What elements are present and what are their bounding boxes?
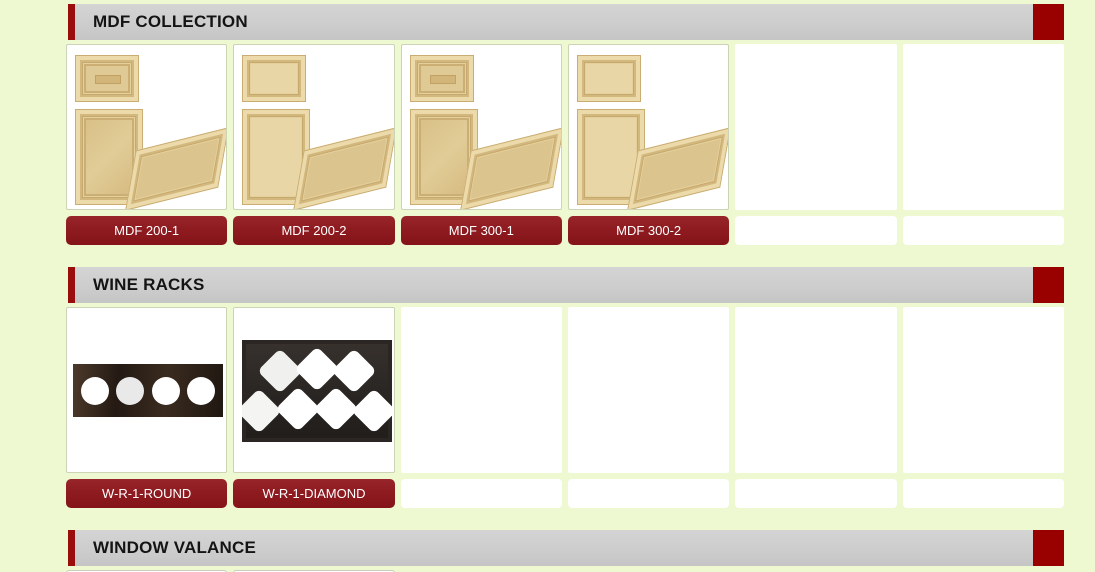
product-cell	[401, 307, 562, 508]
product-cell	[903, 307, 1064, 508]
product-cell: MDF 300-2	[568, 44, 729, 245]
wine-rack-diamond-image	[242, 340, 392, 442]
product-label-button[interactable]: MDF 200-1	[66, 216, 227, 245]
product-cell	[735, 44, 896, 245]
section-title: WINDOW VALANCE	[93, 538, 256, 558]
mdf-door-set-image	[569, 45, 728, 209]
header-accent-bar	[68, 4, 75, 40]
section-header-bar: WINDOW VALANCE	[68, 530, 1064, 566]
product-cell: MDF 300-1	[401, 44, 562, 245]
header-endcap-square	[1033, 267, 1064, 303]
drawer-front-image	[242, 55, 306, 102]
wine-rack-round-image	[73, 364, 223, 417]
mdf-door-set-image	[402, 45, 561, 209]
header-endcap-square	[1033, 4, 1064, 40]
product-label-button[interactable]: MDF 200-2	[233, 216, 394, 245]
empty-label-slot	[401, 479, 562, 508]
catalog-section: WINE RACKSW-R-1-ROUNDW-R-1-DIAMOND	[66, 267, 1064, 508]
diamond-hole	[276, 386, 321, 431]
section-title: WINE RACKS	[93, 275, 205, 295]
product-label-button[interactable]: MDF 300-1	[401, 216, 562, 245]
round-hole	[187, 377, 215, 405]
catalog-page: { "colors": { "background": "#eef8d1", "…	[0, 0, 1095, 572]
product-image-box[interactable]	[401, 44, 562, 210]
header-background: WINE RACKS	[75, 267, 1033, 303]
round-hole	[116, 377, 144, 405]
product-cell: MDF 200-1	[66, 44, 227, 245]
mdf-door-set-image	[67, 45, 226, 209]
product-grid: W-R-1-ROUNDW-R-1-DIAMOND	[66, 307, 1064, 508]
diamond-hole	[332, 348, 377, 393]
header-background: WINDOW VALANCE	[75, 530, 1033, 566]
product-image-box[interactable]	[66, 307, 227, 473]
empty-label-slot	[903, 216, 1064, 245]
product-cell	[903, 44, 1064, 245]
drawer-front-image	[410, 55, 474, 102]
section-title: MDF COLLECTION	[93, 12, 248, 32]
empty-product-slot	[401, 307, 562, 473]
product-cell	[568, 307, 729, 508]
product-image-box[interactable]	[66, 44, 227, 210]
empty-product-slot	[568, 307, 729, 473]
product-cell: MDF 200-2	[233, 44, 394, 245]
diamond-hole	[242, 388, 282, 433]
empty-product-slot	[735, 44, 896, 210]
round-hole	[81, 377, 109, 405]
catalog-section: MDF COLLECTIONMDF 200-1MDF 200-2MDF 300-…	[66, 4, 1064, 245]
empty-label-slot	[735, 216, 896, 245]
empty-product-slot	[903, 307, 1064, 473]
empty-label-slot	[735, 479, 896, 508]
empty-product-slot	[903, 44, 1064, 210]
product-cell: W-R-1-ROUND	[66, 307, 227, 508]
product-image-box[interactable]	[233, 44, 394, 210]
section-header-bar: WINE RACKS	[68, 267, 1064, 303]
product-label-button[interactable]: W-R-1-ROUND	[66, 479, 227, 508]
header-accent-bar	[68, 267, 75, 303]
drawer-front-image	[75, 55, 139, 102]
diamond-hole	[314, 386, 359, 431]
header-background: MDF COLLECTION	[75, 4, 1033, 40]
drawer-front-image	[577, 55, 641, 102]
empty-product-slot	[735, 307, 896, 473]
section-header-bar: MDF COLLECTION	[68, 4, 1064, 40]
header-accent-bar	[68, 530, 75, 566]
catalog-content: MDF COLLECTIONMDF 200-1MDF 200-2MDF 300-…	[66, 4, 1064, 572]
catalog-section: WINDOW VALANCE	[66, 530, 1064, 572]
empty-label-slot	[568, 479, 729, 508]
product-label-button[interactable]: MDF 300-2	[568, 216, 729, 245]
diamond-hole	[352, 388, 393, 433]
product-label-button[interactable]: W-R-1-DIAMOND	[233, 479, 394, 508]
product-grid: MDF 200-1MDF 200-2MDF 300-1MDF 300-2	[66, 44, 1064, 245]
empty-label-slot	[903, 479, 1064, 508]
round-hole	[152, 377, 180, 405]
product-image-box[interactable]	[233, 307, 394, 473]
mdf-door-set-image	[234, 45, 393, 209]
product-image-box[interactable]	[568, 44, 729, 210]
product-cell: W-R-1-DIAMOND	[233, 307, 394, 508]
product-cell	[735, 307, 896, 508]
header-endcap-square	[1033, 530, 1064, 566]
